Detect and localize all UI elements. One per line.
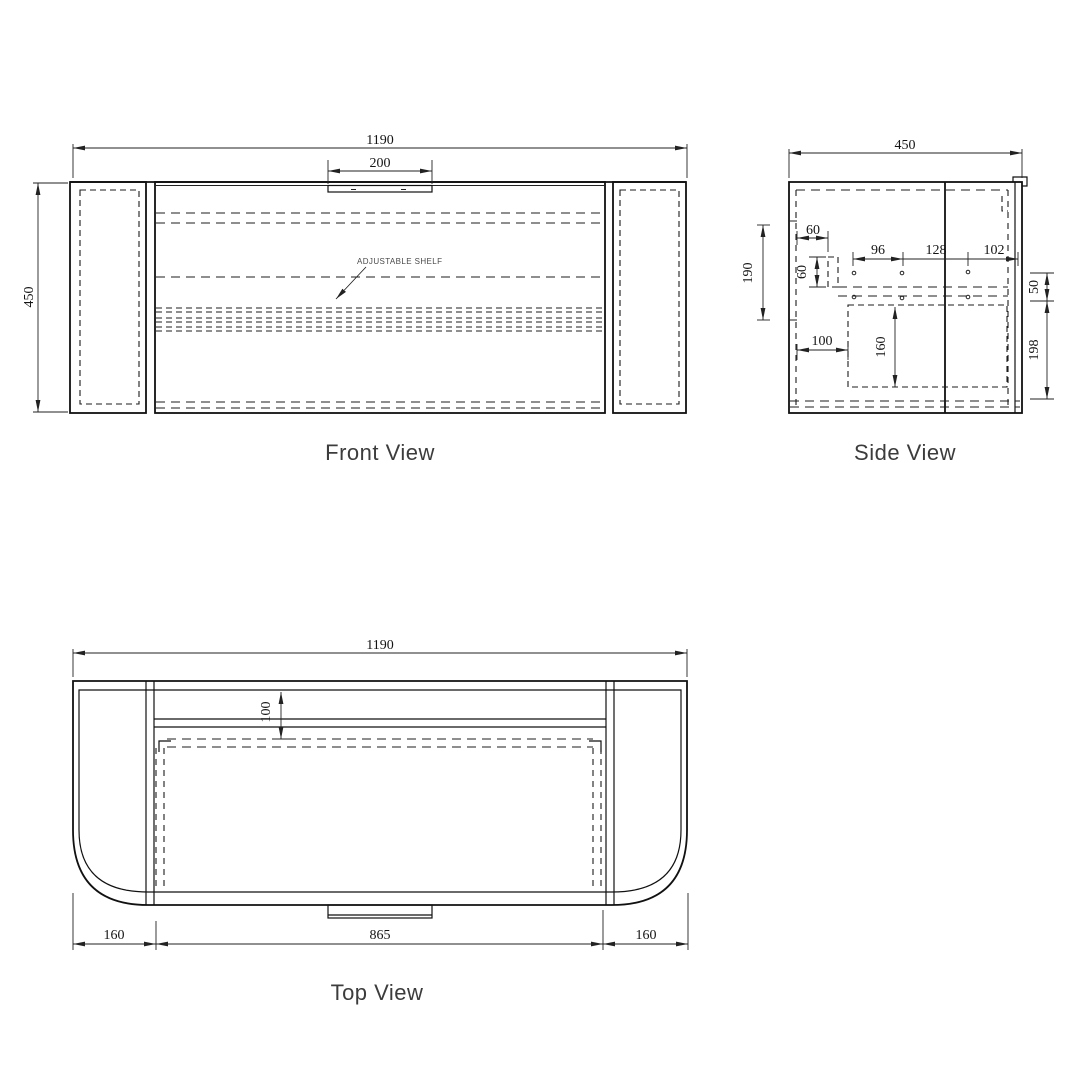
shelf-pin-holes bbox=[852, 270, 970, 300]
side-dim-198: 198 bbox=[1027, 301, 1054, 399]
top-dim-100: 100 bbox=[259, 692, 290, 739]
adjustable-shelf-lines bbox=[156, 308, 604, 331]
front-rail-cutout bbox=[328, 186, 432, 193]
top-dim-160-left: 160 bbox=[73, 893, 156, 950]
svg-text:60: 60 bbox=[806, 223, 820, 238]
svg-text:60: 60 bbox=[795, 265, 810, 279]
side-dim-60-horizontal: 60 bbox=[797, 223, 828, 252]
side-dim-160: 160 bbox=[874, 307, 895, 387]
side-view-drawing: 450 190 60 60 96 1 bbox=[741, 138, 1054, 465]
svg-text:865: 865 bbox=[370, 928, 391, 943]
side-dim-60-vertical: 60 bbox=[795, 257, 826, 287]
svg-text:450: 450 bbox=[22, 287, 37, 308]
svg-text:160: 160 bbox=[104, 928, 125, 943]
top-outline bbox=[73, 681, 687, 918]
svg-text:1190: 1190 bbox=[366, 133, 393, 148]
top-dim-865: 865 bbox=[156, 910, 603, 950]
side-dim-450: 450 bbox=[789, 138, 1022, 178]
technical-drawing-page: ADJUSTABLE SHELF 1190 200 450 Front View bbox=[0, 0, 1080, 1080]
side-view-title: Side View bbox=[854, 440, 956, 465]
front-view-drawing: ADJUSTABLE SHELF 1190 200 450 Front View bbox=[22, 133, 687, 465]
svg-text:50: 50 bbox=[1027, 280, 1042, 294]
svg-text:198: 198 bbox=[1027, 340, 1042, 361]
top-view-title: Top View bbox=[331, 980, 424, 1005]
svg-text:100: 100 bbox=[812, 334, 833, 349]
hidden-drawer-box bbox=[848, 305, 1007, 387]
hidden-bracket-box bbox=[828, 257, 838, 287]
side-outline bbox=[789, 177, 1027, 413]
top-rail-tab bbox=[328, 905, 432, 918]
side-dim-100: 100 bbox=[797, 334, 848, 360]
front-hidden-lines bbox=[80, 190, 679, 408]
front-dim-200: 200 bbox=[328, 156, 432, 184]
svg-text:1190: 1190 bbox=[366, 638, 393, 653]
svg-text:450: 450 bbox=[895, 138, 916, 153]
svg-text:190: 190 bbox=[741, 263, 756, 284]
drawing-canvas: ADJUSTABLE SHELF 1190 200 450 Front View bbox=[0, 0, 1080, 1080]
svg-text:100: 100 bbox=[259, 702, 274, 723]
top-hidden-lines bbox=[156, 739, 601, 888]
svg-text:102: 102 bbox=[984, 243, 1005, 258]
front-cabinet-outline bbox=[70, 182, 686, 413]
side-hidden-lines bbox=[790, 190, 1020, 407]
side-dim-190: 190 bbox=[741, 225, 770, 320]
svg-text:96: 96 bbox=[871, 243, 885, 258]
svg-text:160: 160 bbox=[636, 928, 657, 943]
front-view-title: Front View bbox=[325, 440, 435, 465]
adjustable-shelf-callout: ADJUSTABLE SHELF bbox=[336, 257, 442, 299]
top-dim-1190: 1190 bbox=[73, 638, 687, 677]
side-dim-hole-pitches: 96 128 102 bbox=[853, 243, 1018, 266]
svg-text:160: 160 bbox=[874, 337, 889, 358]
top-dim-160-right: 160 bbox=[603, 893, 688, 950]
side-dim-50: 50 bbox=[1027, 273, 1054, 301]
adjustable-shelf-label: ADJUSTABLE SHELF bbox=[357, 257, 442, 266]
front-dim-450: 450 bbox=[22, 183, 68, 412]
svg-text:200: 200 bbox=[370, 156, 391, 171]
top-view-drawing: 1190 100 865 160 160 Top View bbox=[73, 638, 688, 1005]
svg-text:128: 128 bbox=[926, 243, 947, 258]
